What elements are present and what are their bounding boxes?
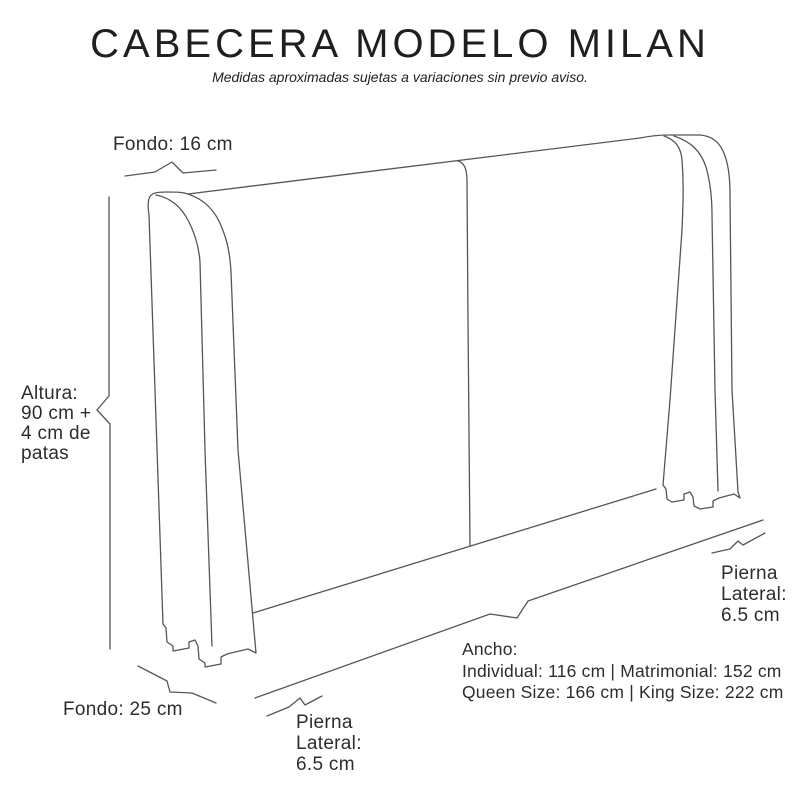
- pierna-lateral-right-label: Pierna Lateral: 6.5 cm: [721, 563, 787, 626]
- ancho-line2: Queen Size: 166 cm | King Size: 222 cm: [462, 682, 783, 704]
- right-post-feet-path: [663, 485, 740, 509]
- headboard-outline-path: [148, 135, 738, 624]
- ancho-label-block: Ancho: Individual: 116 cm | Matrimonial:…: [462, 639, 783, 704]
- left-post-feet-path: [163, 624, 256, 667]
- center-seam-path: [458, 161, 470, 546]
- right-post-inner-edge-path: [663, 136, 683, 485]
- pierna-lateral-bottom-label: Pierna Lateral: 6.5 cm: [296, 712, 362, 775]
- fondo-top-dimension-line: [125, 162, 216, 176]
- ancho-line1: Individual: 116 cm | Matrimonial: 152 cm: [462, 661, 783, 683]
- right-post-seam-path: [674, 136, 718, 491]
- altura-dimension-line: [97, 197, 110, 649]
- ancho-heading: Ancho:: [462, 639, 783, 661]
- headboard-spec-sheet: CABECERA MODELO MILAN Medidas aproximada…: [0, 0, 800, 800]
- fondo-bottom-label: Fondo: 25 cm: [63, 699, 183, 720]
- left-post-seam-path: [156, 195, 212, 646]
- pierna-lateral-right-dimension-line: [712, 533, 765, 553]
- panel-bottom-edge-path: [253, 489, 656, 613]
- altura-label: Altura: 90 cm + 4 cm de patas: [21, 384, 91, 464]
- left-post-inner-edge-path: [188, 194, 256, 653]
- fondo-bottom-dimension-line: [138, 666, 216, 703]
- fondo-top-label: Fondo: 16 cm: [113, 134, 233, 155]
